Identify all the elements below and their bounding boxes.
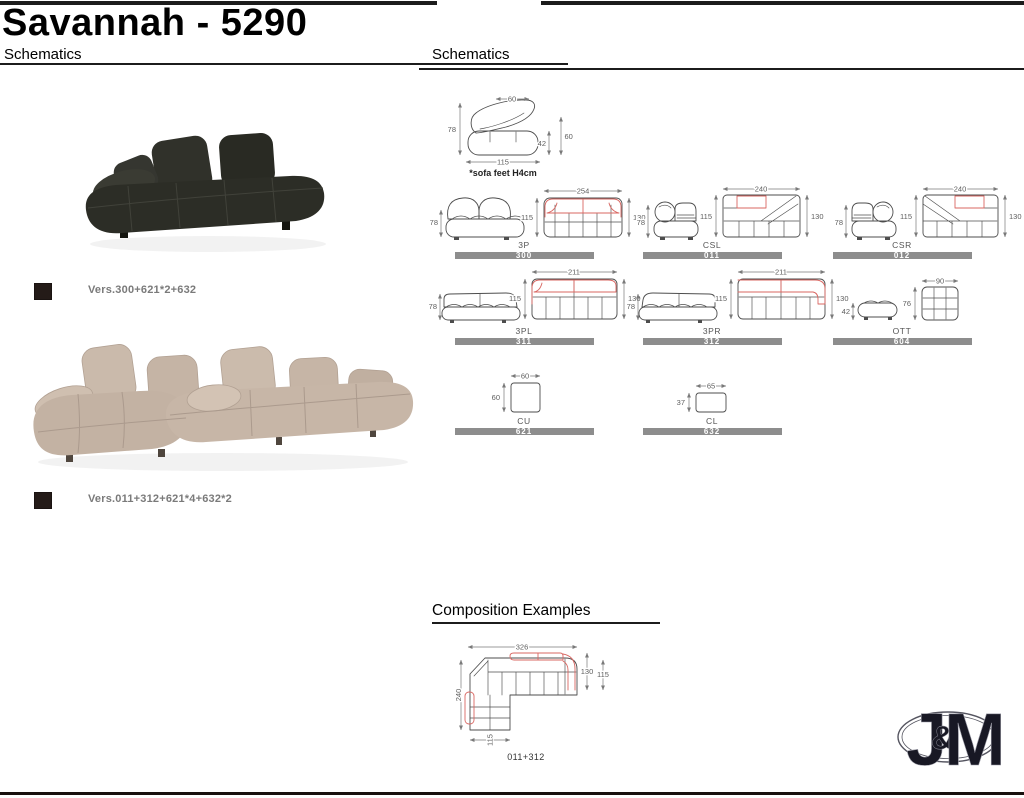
module-label: 3PL [516,326,533,336]
module-code: 604 [894,337,910,346]
dim-side-height: 78 [429,302,437,311]
dim-leg-width: 115 [486,734,495,746]
dim-depth: 130 [836,294,849,303]
module-label: 3PR [703,326,721,336]
hero-dim-seat-height: 42 [538,139,546,148]
highlight-backrest [955,196,984,208]
dim-depth: 115 [700,212,712,221]
dim-depth: 76 [903,299,911,308]
schematic-hero-side-view: 60 78 42 60 115 *sofa feet H4cm [448,95,573,178]
dim-width: 254 [577,187,590,196]
dim-side-height: 42 [842,307,850,316]
module-code: 300 [516,251,532,260]
top-view [696,393,726,412]
dim-width: 240 [755,185,768,194]
module-csr: 78 240 115 130 CSR 012 [833,185,1022,260]
dim-depth: 115 [521,213,533,222]
dim-width: 60 [521,372,529,381]
module-label: CSL [703,240,721,250]
highlight-backrest [737,196,766,208]
composition-section-header: Composition Examples [432,602,591,620]
product-caption-2: Vers.011+312+621*4+632*2 [88,493,232,505]
section-header-right: Schematics [432,46,510,63]
sofa-shadow [38,453,408,471]
hero-dim-height: 78 [448,125,456,134]
base-profile [468,131,538,155]
left-header-underline [0,63,568,65]
product-caption-1: Vers.300+621*2+632 [88,284,196,296]
product-photo-beige-sectional [18,336,438,476]
top-view [922,287,958,320]
jm-logo: J & M [882,692,1017,792]
composition-top-view [470,658,577,730]
dim-back-depth: 130 [581,667,594,676]
dim-depth: 115 [715,294,727,303]
module-code: 621 [516,427,532,436]
hero-dim-back-height: 60 [565,132,573,141]
logo-letter-m: M [944,698,1006,781]
module-label: CSR [892,240,912,250]
dim-depth: 130 [1009,212,1022,221]
spec-sheet-page: Savannah - 5290 Schematics Schematics Ve… [0,0,1024,798]
composition-header-underline [432,622,660,624]
module-code: 312 [704,337,720,346]
dim-seat-depth: 115 [597,670,609,679]
color-swatch [34,492,52,509]
dim-depth: 60 [492,393,500,402]
chaise-seat [33,391,188,456]
sofa-feet-note: *sofa feet H4cm [469,168,537,178]
hero-dim-width: 60 [508,95,516,104]
dim-depth: 115 [900,212,912,221]
module-3p: 78 254 115 130 3P 300 [430,187,646,260]
composition-example-011-312: 326 240 130 115 115 011+312 [454,643,609,762]
module-cl: 65 37 CL 632 [643,382,782,436]
dim-width: 65 [707,382,715,391]
module-code: 011 [704,251,720,260]
product-photo-dark-sofa [58,128,348,268]
bottom-border [0,792,1024,795]
color-swatch [34,283,52,300]
module-cu: 60 60 CU 621 [455,372,594,436]
top-view [738,279,825,319]
dim-depth: 37 [677,398,685,407]
module-code: 632 [704,427,720,436]
module-3pl: 78 211 115 130 3PL 311 [429,268,641,346]
right-header-underline [419,68,1024,70]
top-view [923,195,998,237]
section-header-left: Schematics [4,46,82,63]
dim-width: 211 [775,268,787,277]
schematics-panel: 60 78 42 60 115 *sofa feet H4cm 78 254 [432,85,1024,445]
highlight-side-cushion [465,692,474,724]
module-label: OTT [893,326,912,336]
dim-side-height: 78 [637,218,645,227]
module-label: 3P [518,240,530,250]
module-code: 311 [516,337,532,346]
dim-depth: 130 [811,212,824,221]
dim-width: 326 [516,643,529,652]
sofa-shadow [90,236,326,252]
dim-depth: 115 [509,294,521,303]
composition-caption: 011+312 [507,752,544,762]
page-title: Savannah - 5290 [2,2,307,45]
dim-width: 211 [568,268,580,277]
top-view [532,279,617,319]
module-code: 012 [894,251,910,260]
module-label: CL [706,416,718,426]
hero-dim-depth: 115 [497,158,509,167]
top-view [511,383,540,412]
top-border-right [541,1,1024,5]
dim-side-height: 78 [627,302,635,311]
module-label: CU [517,416,530,426]
dim-depth: 240 [454,689,463,702]
backrest-profile [471,100,534,133]
dim-side-height: 78 [430,218,438,227]
dim-width: 240 [954,185,967,194]
module-3pr: 78 211 115 130 3PR 312 [627,268,849,346]
dim-width: 90 [936,277,944,286]
highlight-backrest [738,280,825,304]
dim-side-height: 78 [835,218,843,227]
module-csl: 78 240 115 130 CSL 011 [637,185,824,260]
module-ott: 42 90 76 OTT 604 [833,277,972,346]
